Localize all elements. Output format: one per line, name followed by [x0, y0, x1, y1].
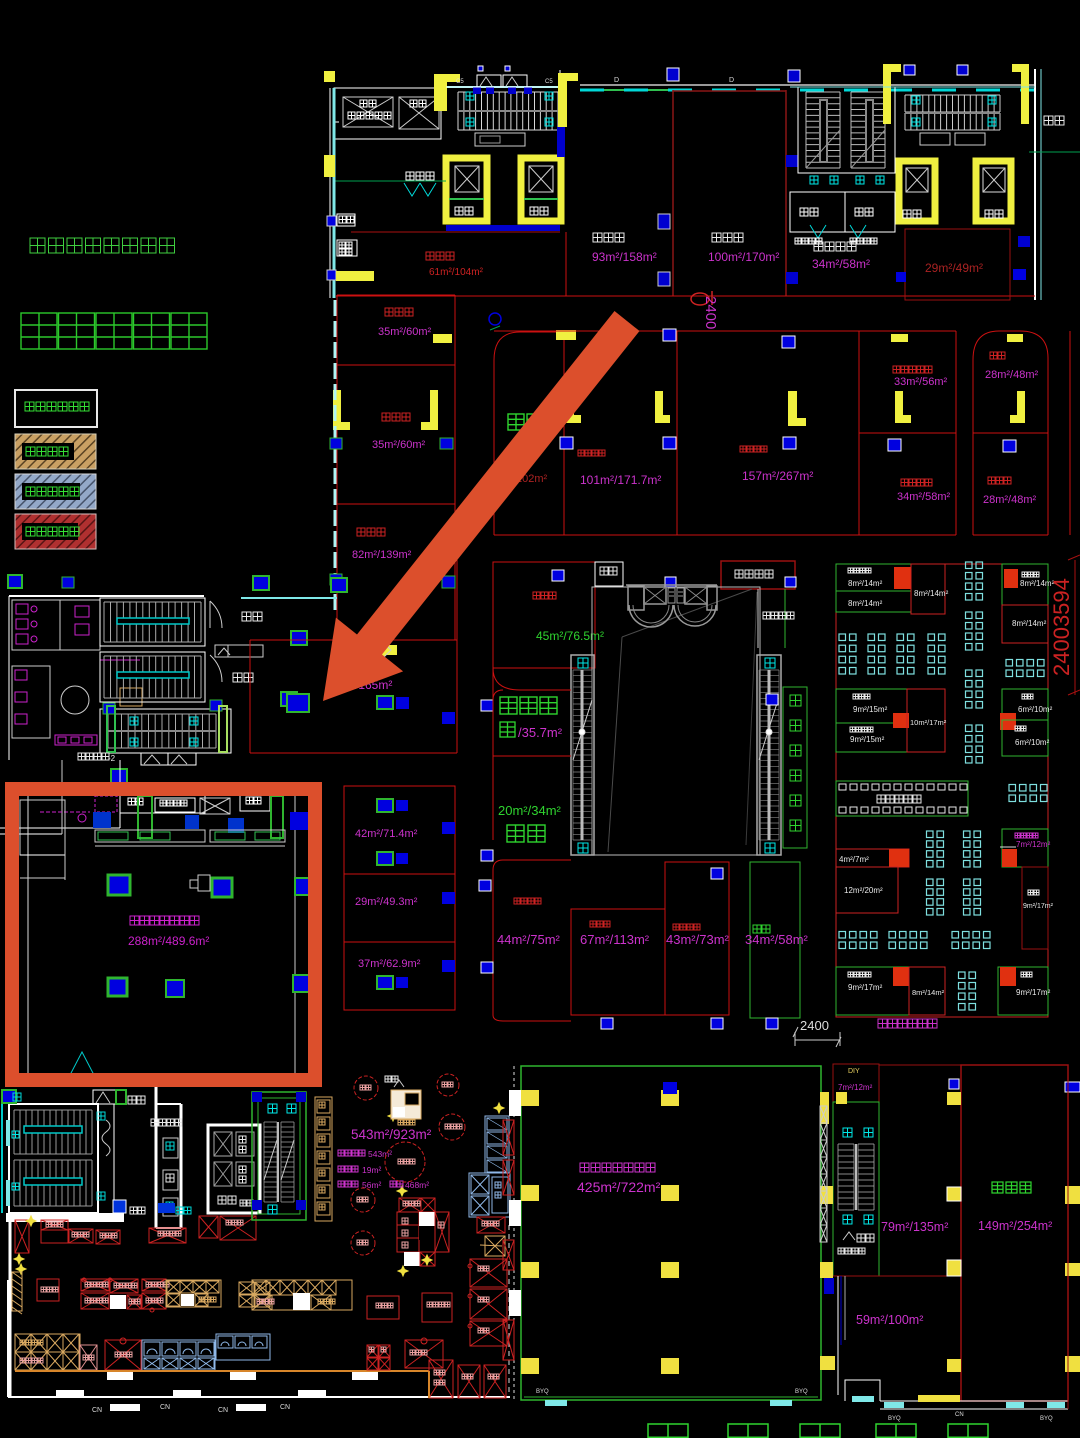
- svg-text:67m²/113m²: 67m²/113m²: [580, 932, 650, 947]
- svg-text:29m²/49.3m²: 29m²/49.3m²: [355, 896, 418, 908]
- svg-text:43m²/73m²: 43m²/73m²: [666, 932, 730, 947]
- svg-text:34m²/58m²: 34m²/58m²: [812, 257, 870, 271]
- svg-text:37m²/62.9m²: 37m²/62.9m²: [358, 958, 421, 970]
- svg-text:93m²/158m²: 93m²/158m²: [592, 250, 657, 264]
- svg-text:8m²/14m²: 8m²/14m²: [848, 599, 883, 608]
- svg-text:6m²/10m²: 6m²/10m²: [1018, 705, 1053, 714]
- svg-text:28m²/48m²: 28m²/48m²: [983, 494, 1037, 506]
- svg-text:33m²/56m²: 33m²/56m²: [894, 376, 948, 388]
- svg-text:44m²/75m²: 44m²/75m²: [497, 932, 561, 947]
- svg-text:CN: CN: [160, 1404, 170, 1411]
- svg-text:82m²/139m²: 82m²/139m²: [352, 549, 412, 561]
- svg-text:34m²/58m²: 34m²/58m²: [897, 491, 951, 503]
- svg-text:C5: C5: [456, 79, 464, 85]
- svg-text:543m²/923m²: 543m²/923m²: [351, 1127, 432, 1142]
- svg-text:4m²/7m²: 4m²/7m²: [839, 855, 869, 864]
- svg-text:9m²/17m²: 9m²/17m²: [1016, 988, 1051, 997]
- svg-text:9m²/15m²: 9m²/15m²: [853, 705, 888, 714]
- svg-text:149m²/254m²: 149m²/254m²: [978, 1219, 1052, 1233]
- svg-text:28m²/48m²: 28m²/48m²: [985, 369, 1039, 381]
- svg-text:157m²/267m²: 157m²/267m²: [742, 469, 813, 483]
- svg-text:34m²/58m²: 34m²/58m²: [745, 932, 809, 947]
- svg-text:45m²/76.5m²: 45m²/76.5m²: [536, 629, 604, 643]
- svg-text:100m²/170m²: 100m²/170m²: [708, 250, 779, 264]
- svg-text:CN: CN: [218, 1407, 228, 1414]
- svg-text:8m²/14m²: 8m²/14m²: [1012, 619, 1047, 628]
- svg-text:10m²/17m²: 10m²/17m²: [910, 718, 947, 727]
- svg-text:9m²/17m²: 9m²/17m²: [848, 983, 883, 992]
- svg-text:12m²/20m²: 12m²/20m²: [844, 886, 883, 895]
- svg-text:8m²/14m²: 8m²/14m²: [912, 988, 945, 997]
- svg-text:2400: 2400: [702, 296, 719, 329]
- svg-text:9m²/17m²: 9m²/17m²: [1023, 903, 1054, 910]
- svg-text:BYQ: BYQ: [536, 1389, 549, 1395]
- svg-text:D: D: [729, 77, 734, 84]
- svg-text:24003594: 24003594: [1049, 578, 1074, 676]
- svg-text:79m²/135m²: 79m²/135m²: [881, 1220, 948, 1234]
- svg-text:101m²/171.7m²: 101m²/171.7m²: [580, 473, 661, 487]
- svg-text:19m²: 19m²: [362, 1165, 382, 1175]
- svg-text:DIY: DIY: [848, 1068, 860, 1075]
- svg-text:61m²/104m²: 61m²/104m²: [429, 267, 484, 278]
- svg-text:29m²/49m²: 29m²/49m²: [925, 261, 983, 275]
- svg-text:7m²/12m²: 7m²/12m²: [1016, 840, 1051, 849]
- svg-text:56m²: 56m²: [362, 1180, 382, 1190]
- svg-text:BYQ: BYQ: [888, 1416, 901, 1422]
- svg-text:2400: 2400: [800, 1018, 829, 1033]
- svg-text:425m²/722m²: 425m²/722m²: [577, 1179, 661, 1195]
- svg-text:6m²/10m²: 6m²/10m²: [1015, 738, 1050, 747]
- svg-text:20m²/34m²: 20m²/34m²: [498, 803, 562, 818]
- svg-text:CN: CN: [955, 1412, 964, 1418]
- svg-text:BYQ: BYQ: [1040, 1416, 1053, 1422]
- svg-text:CN: CN: [280, 1404, 290, 1411]
- svg-text:7m²/12m²: 7m²/12m²: [838, 1083, 873, 1092]
- svg-text:8m²/14m²: 8m²/14m²: [914, 589, 949, 598]
- svg-text:9m²/15m²: 9m²/15m²: [850, 735, 885, 744]
- svg-text:D: D: [614, 77, 619, 84]
- svg-text:35m²/60m²: 35m²/60m²: [378, 326, 432, 338]
- svg-text:35m²/60m²: 35m²/60m²: [372, 439, 426, 451]
- svg-text:CN: CN: [92, 1407, 102, 1414]
- svg-text:BYQ: BYQ: [795, 1389, 808, 1395]
- svg-text:288m²/489.6m²: 288m²/489.6m²: [128, 934, 209, 948]
- svg-text:8m²/14m²: 8m²/14m²: [848, 579, 883, 588]
- svg-text:/35.7m²: /35.7m²: [518, 725, 563, 740]
- svg-text:42m²/71.4m²: 42m²/71.4m²: [355, 828, 418, 840]
- svg-text:59m²/100m²: 59m²/100m²: [856, 1313, 923, 1327]
- svg-text:C5: C5: [545, 79, 553, 85]
- svg-text:-2: -2: [108, 754, 116, 763]
